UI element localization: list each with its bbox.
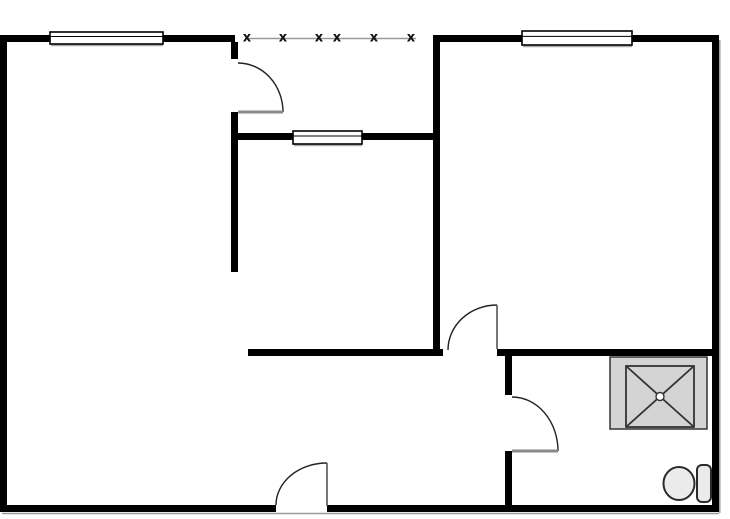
wall-outer-bottom-left bbox=[0, 505, 276, 512]
wall-room2-left bbox=[433, 42, 440, 352]
wall-outer-left bbox=[0, 35, 7, 512]
railing-x-mark: x bbox=[315, 31, 324, 46]
wall-room1-right bbox=[231, 112, 238, 272]
railing-x-mark: x bbox=[407, 31, 416, 46]
shower-drain bbox=[656, 393, 664, 401]
floor-plan-svg: xxxxxx bbox=[0, 0, 730, 519]
railing-x-mark: x bbox=[243, 31, 252, 46]
window-room2-top bbox=[522, 31, 632, 46]
wall-bath-left-lower bbox=[505, 451, 512, 505]
wall-room1-door-stub bbox=[231, 42, 238, 59]
plan-background bbox=[0, 0, 730, 519]
toilet bbox=[664, 465, 712, 502]
railing-x-mark: x bbox=[279, 31, 288, 46]
window-frame bbox=[50, 32, 163, 44]
railing-x-mark: x bbox=[333, 31, 342, 46]
window-frame bbox=[293, 131, 362, 144]
wall-hall-bottom-left bbox=[248, 349, 443, 356]
toilet-bowl bbox=[664, 467, 695, 500]
window-frame bbox=[522, 31, 632, 45]
floor-plan-page: xxxxxx bbox=[0, 0, 730, 519]
window-interior bbox=[293, 131, 362, 145]
wall-bath-left-upper bbox=[505, 356, 512, 395]
shower-tray bbox=[610, 357, 707, 429]
wall-hall-bottom-right bbox=[497, 349, 712, 356]
wall-outer-right bbox=[712, 35, 719, 512]
toilet-tank bbox=[697, 465, 711, 502]
wall-outer-bottom-right bbox=[327, 505, 719, 512]
railing-x-mark: x bbox=[370, 31, 379, 46]
floor-plan: xxxxxx bbox=[0, 0, 730, 519]
window-room1-top bbox=[50, 32, 163, 45]
